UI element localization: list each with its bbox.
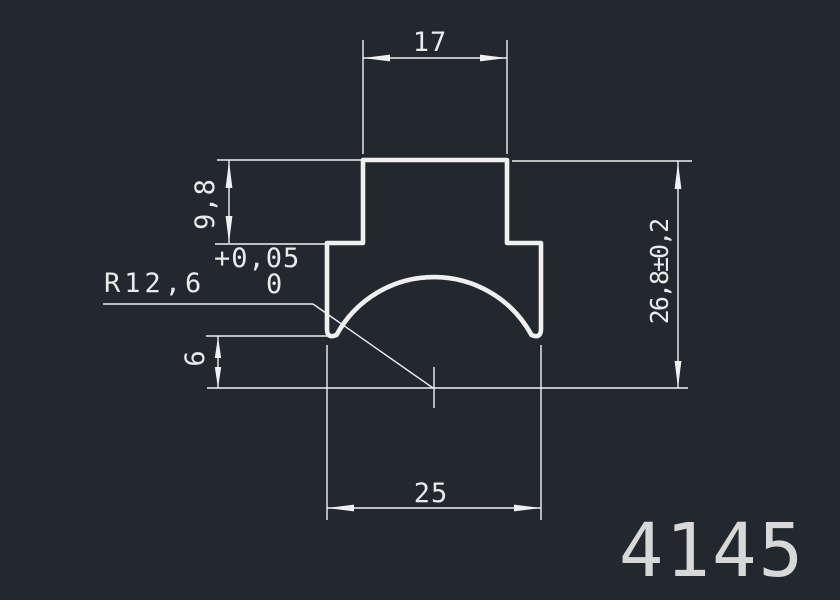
arrowhead: [215, 337, 221, 358]
profile-outline: [327, 160, 541, 336]
arrowhead: [480, 55, 507, 62]
arrowhead: [226, 216, 233, 243]
dimension-text-top-width: 17: [413, 27, 448, 58]
arrowhead: [215, 367, 221, 388]
part-number-label: 4145: [619, 508, 805, 594]
arrowhead: [514, 505, 541, 512]
dimension-top-width: 17: [363, 27, 507, 154]
tolerance-lower-value: 0: [266, 269, 283, 300]
dimension-leg-height: 6: [180, 336, 329, 388]
dimension-text-upper-height: 9,8: [190, 178, 221, 230]
arrowhead: [327, 505, 354, 512]
dimension-text-leg-height: 6: [180, 349, 211, 366]
dimension-text-radius: R12,6: [104, 268, 205, 299]
arrowhead: [675, 162, 682, 189]
dimension-text-overall-height: 26,8±0,2: [645, 220, 674, 324]
tolerance-upper-value: +0,05: [214, 243, 300, 274]
cad-drawing-canvas: 17 9,8 +0,05 0 R12,6 6: [0, 0, 840, 600]
dimension-upper-height: 9,8 +0,05 0: [190, 160, 361, 300]
leader-line: [313, 304, 433, 388]
dimension-text-bottom-width: 25: [414, 478, 449, 509]
arrowhead: [226, 161, 233, 188]
arrowhead: [675, 361, 682, 388]
profile-drawing: 17 9,8 +0,05 0 R12,6 6: [0, 0, 840, 600]
arrowhead: [363, 55, 390, 62]
